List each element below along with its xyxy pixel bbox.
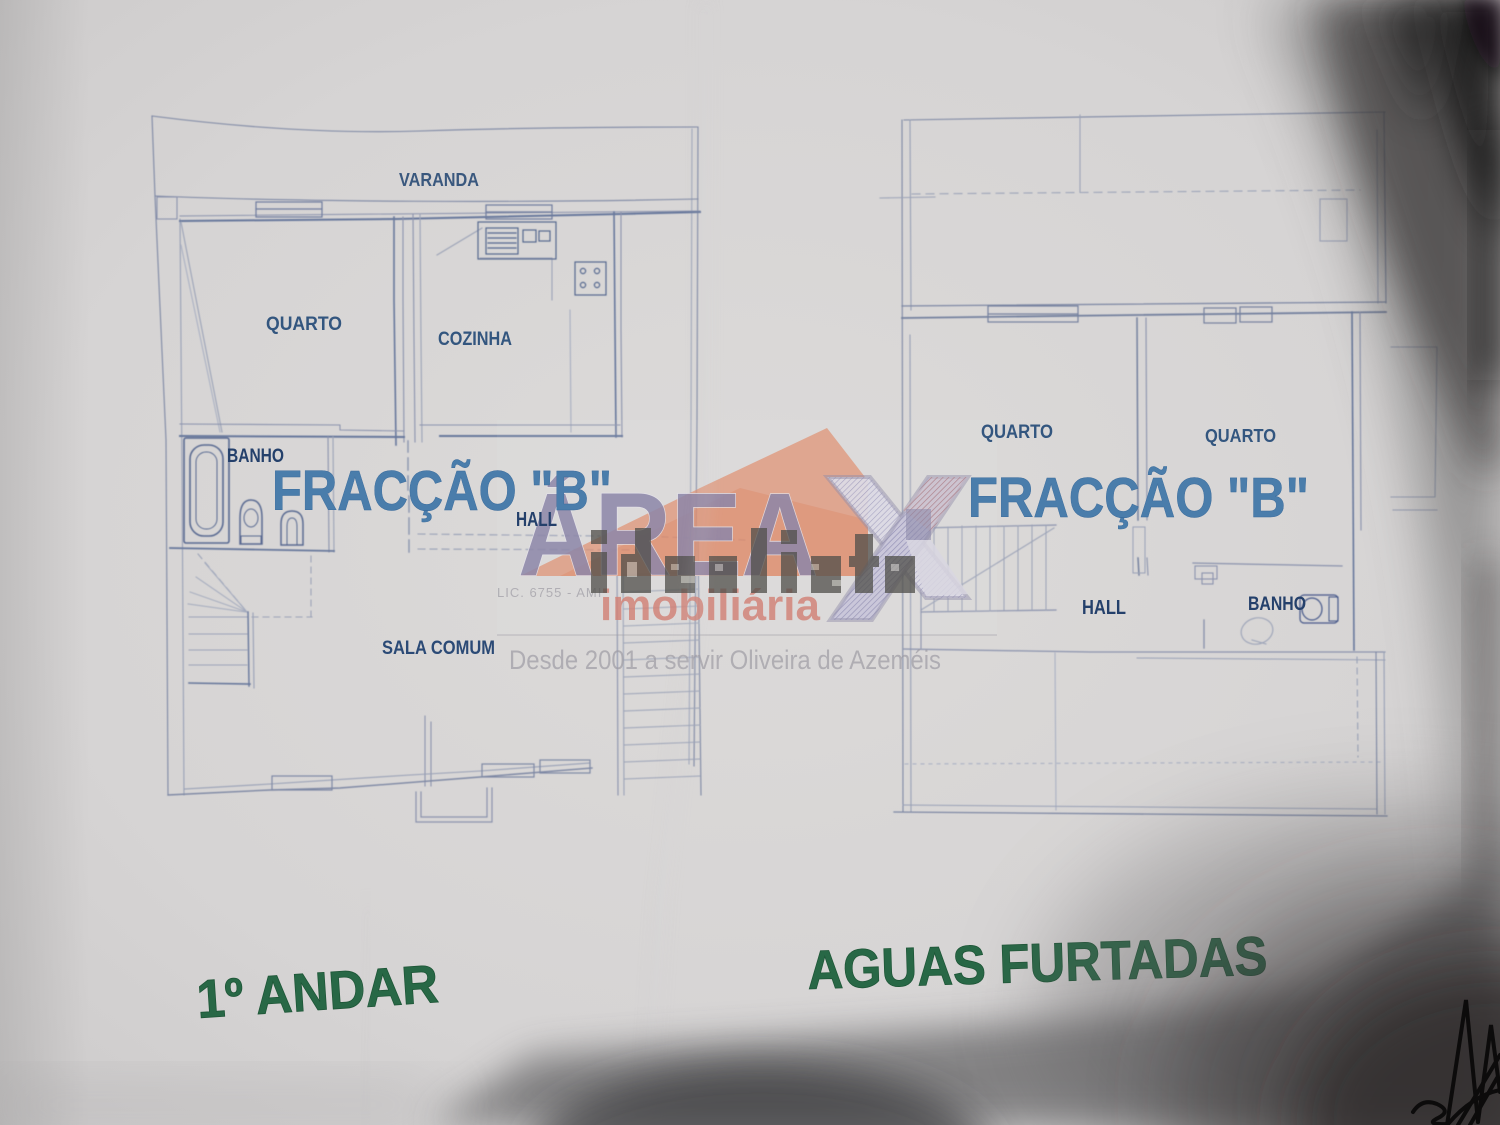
svg-text:QUARTO: QUARTO — [1205, 426, 1276, 446]
svg-text:FRACÇÃO "B": FRACÇÃO "B" — [968, 466, 1309, 530]
svg-text:Desde 2001 a servir Oliveira d: Desde 2001 a servir Oliveira de Azeméis — [509, 645, 941, 675]
svg-text:VARANDA: VARANDA — [399, 170, 479, 190]
svg-text:BANHO: BANHO — [1248, 594, 1306, 615]
svg-text:FRACÇÃO "B": FRACÇÃO "B" — [272, 459, 612, 523]
svg-text:QUARTO: QUARTO — [266, 314, 342, 335]
svg-text:SALA COMUM: SALA COMUM — [382, 638, 495, 659]
svg-text:QUARTO: QUARTO — [981, 422, 1053, 443]
svg-text:HALL: HALL — [1082, 597, 1126, 619]
svg-text:COZINHA: COZINHA — [438, 329, 512, 350]
svg-text:LIC. 6755 - AMI: LIC. 6755 - AMI — [497, 585, 602, 600]
